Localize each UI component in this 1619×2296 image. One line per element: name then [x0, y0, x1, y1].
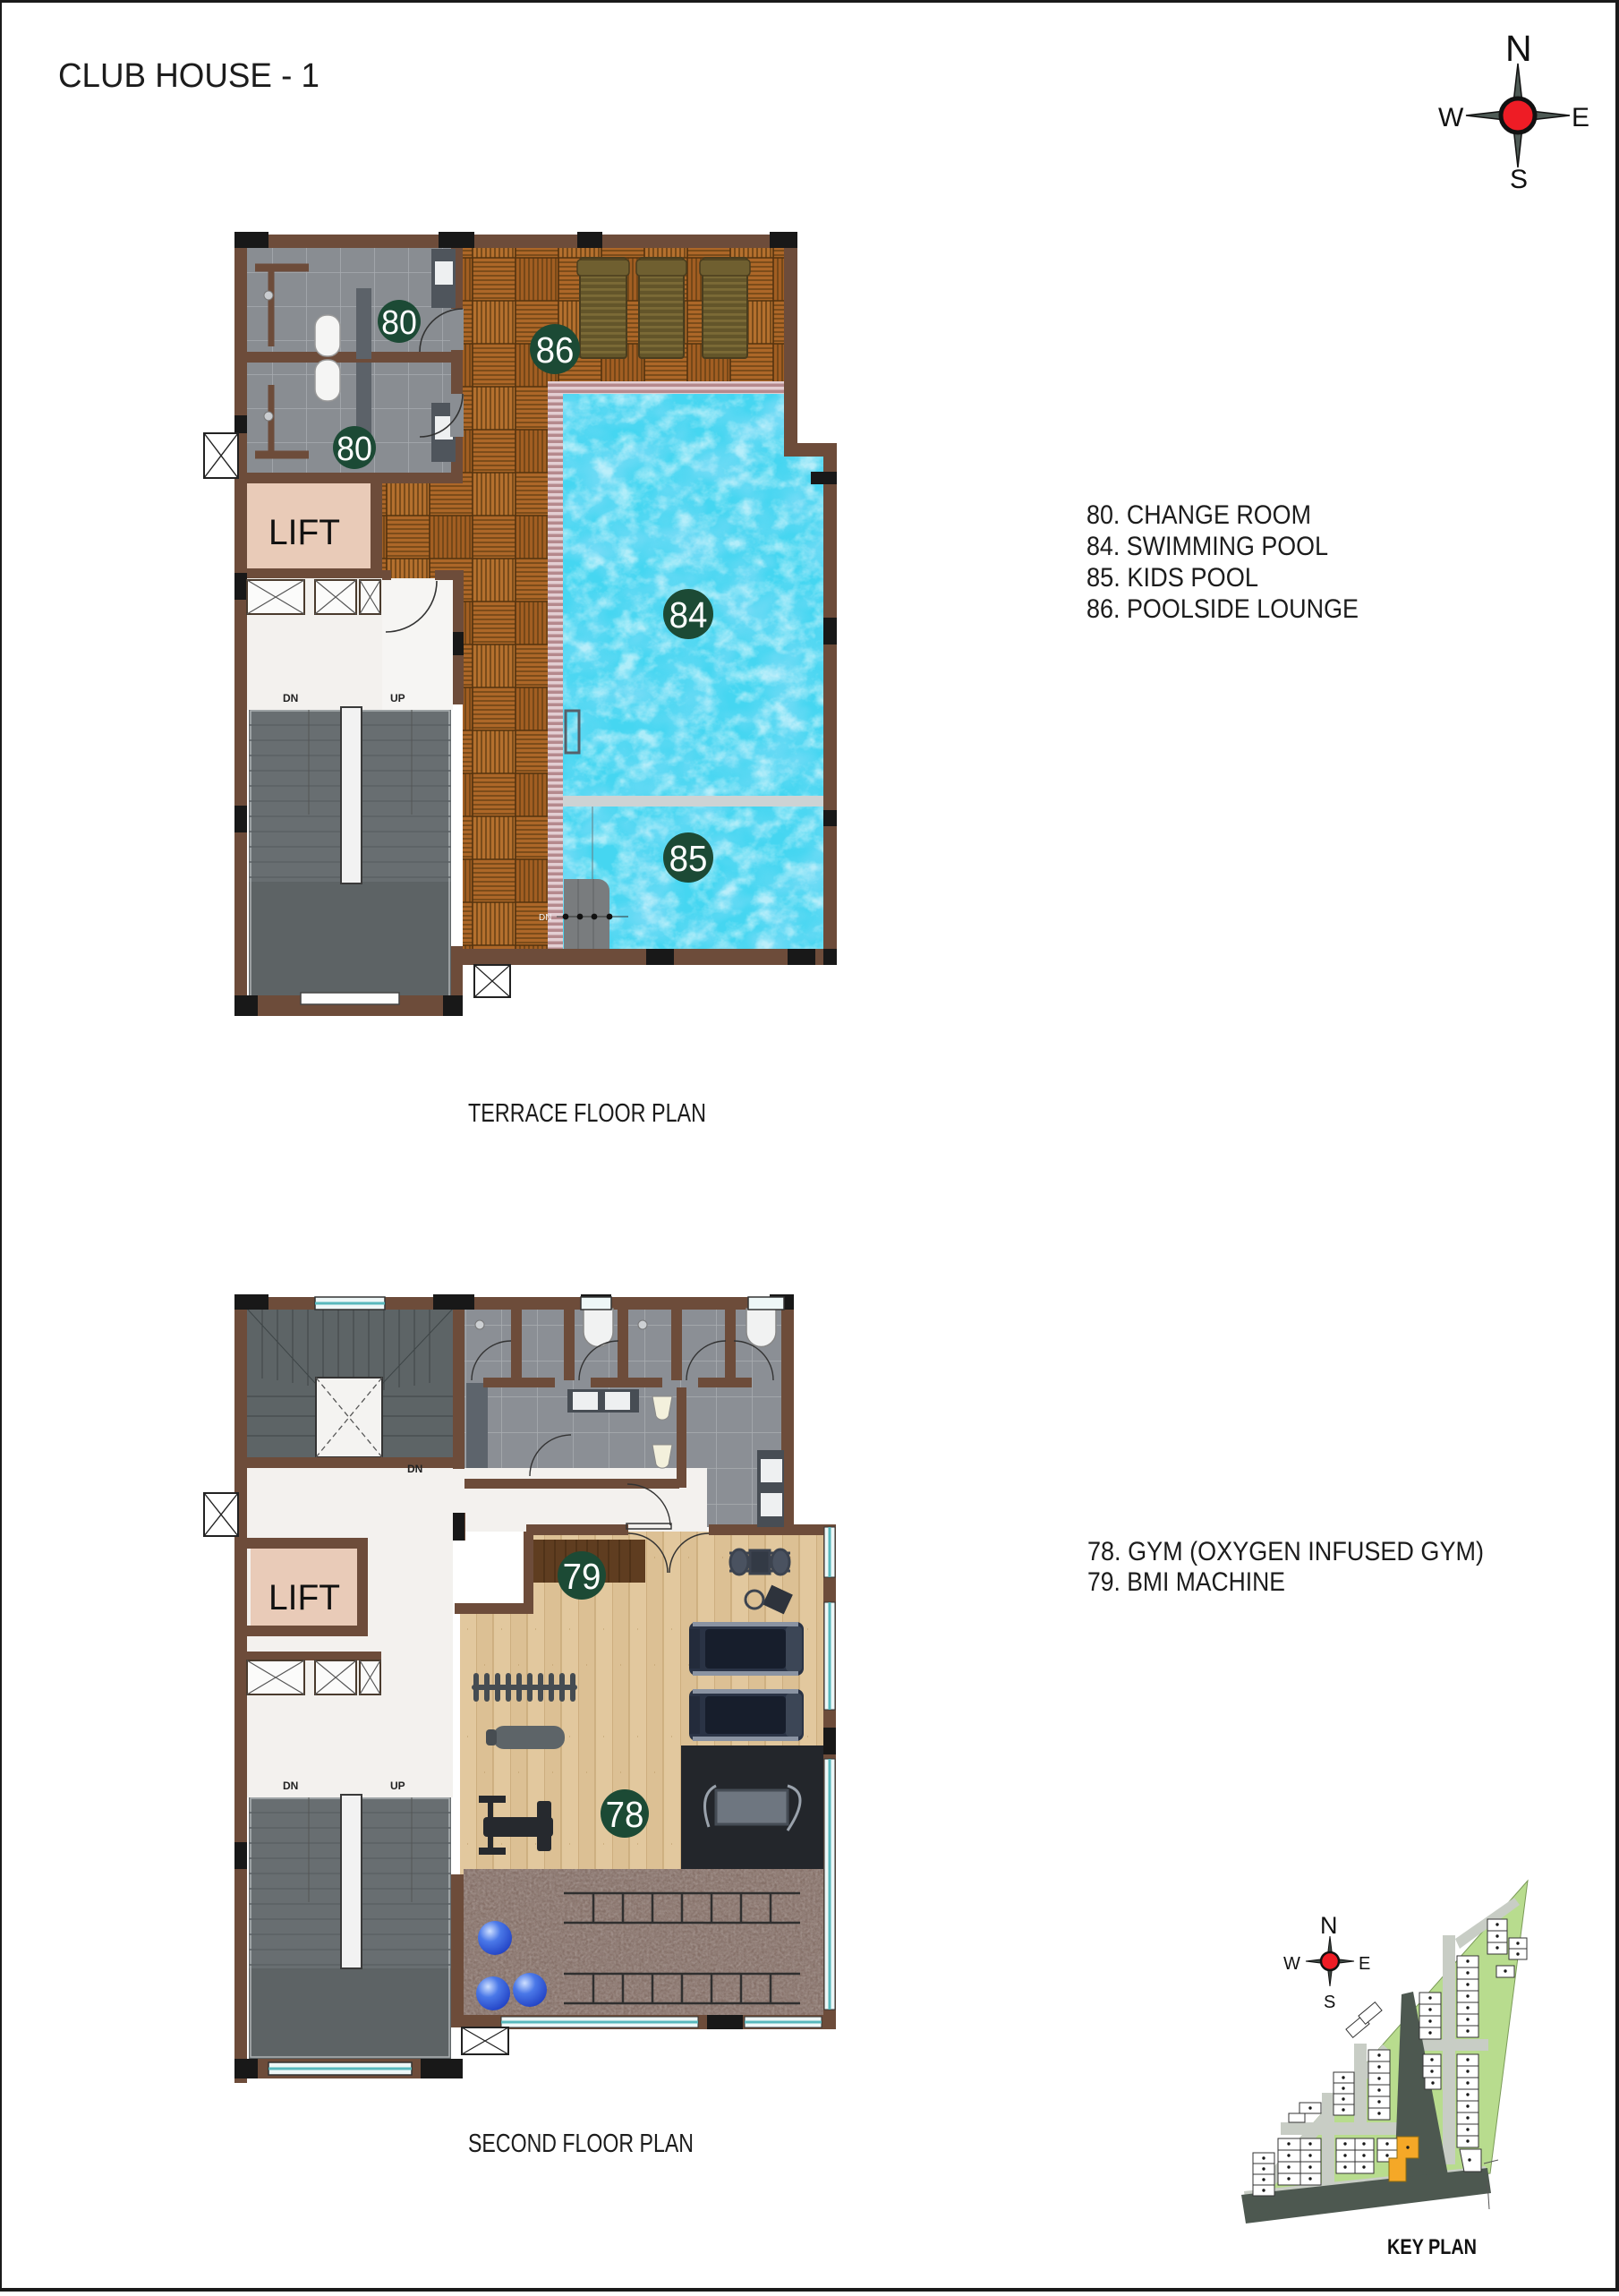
svg-text:S: S	[1510, 165, 1528, 194]
svg-text:80. CHANGE ROOM: 80. CHANGE ROOM	[1086, 500, 1311, 530]
svg-text:85: 85	[669, 839, 708, 879]
svg-text:N: N	[1320, 1912, 1338, 1939]
svg-text:CLUB HOUSE - 1: CLUB HOUSE - 1	[58, 57, 320, 95]
svg-text:E: E	[1359, 1954, 1370, 1974]
svg-text:LIFT: LIFT	[268, 513, 340, 552]
svg-text:TERRACE FLOOR PLAN: TERRACE FLOOR PLAN	[468, 1099, 706, 1128]
svg-text:79: 79	[563, 1557, 601, 1597]
svg-text:79. BMI MACHINE: 79. BMI MACHINE	[1087, 1567, 1285, 1597]
svg-text:84. SWIMMING POOL: 84. SWIMMING POOL	[1086, 532, 1328, 561]
svg-text:86. POOLSIDE LOUNGE: 86. POOLSIDE LOUNGE	[1086, 594, 1359, 624]
svg-text:UP: UP	[390, 692, 405, 704]
svg-text:DN: DN	[283, 1780, 298, 1792]
svg-text:LIFT: LIFT	[268, 1578, 340, 1617]
svg-text:86: 86	[536, 330, 575, 371]
svg-text:84: 84	[669, 595, 708, 636]
svg-text:E: E	[1572, 103, 1589, 132]
svg-text:85. KIDS POOL: 85. KIDS POOL	[1086, 563, 1258, 593]
svg-text:W: W	[1283, 1954, 1300, 1974]
svg-text:78: 78	[606, 1795, 644, 1835]
svg-text:78. GYM (OXYGEN INFUSED GYM): 78. GYM (OXYGEN INFUSED GYM)	[1087, 1537, 1484, 1566]
svg-text:S: S	[1324, 1993, 1335, 2012]
svg-text:DN: DN	[539, 913, 551, 923]
svg-text:N: N	[1505, 28, 1532, 69]
svg-text:W: W	[1438, 103, 1464, 132]
svg-text:UP: UP	[390, 1780, 405, 1792]
svg-text:80: 80	[381, 303, 417, 341]
svg-text:KEY PLAN: KEY PLAN	[1387, 2235, 1477, 2259]
svg-text:DN: DN	[283, 692, 298, 704]
svg-text:SECOND FLOOR PLAN: SECOND FLOOR PLAN	[468, 2130, 694, 2158]
svg-text:DN: DN	[407, 1463, 422, 1475]
svg-text:80: 80	[337, 430, 372, 467]
